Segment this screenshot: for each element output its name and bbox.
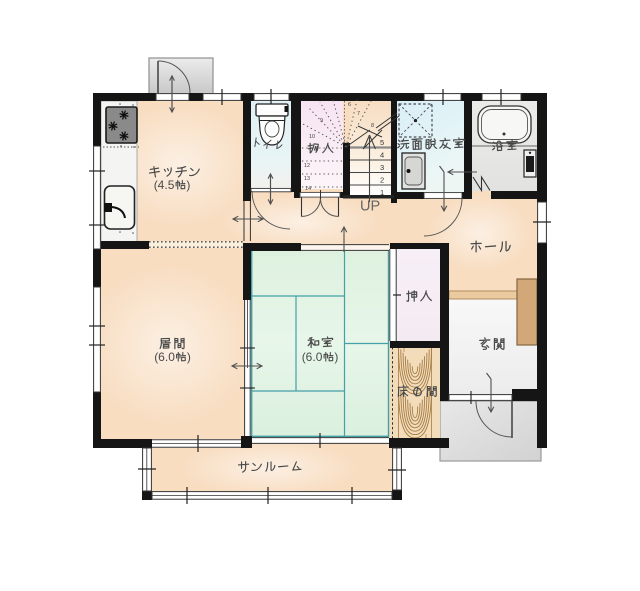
svg-text:(6.0: (6.0 xyxy=(154,350,175,364)
svg-text:12: 12 xyxy=(304,163,310,169)
svg-text:8: 8 xyxy=(371,123,374,129)
svg-text:3: 3 xyxy=(380,163,384,172)
svg-text:10: 10 xyxy=(309,134,315,140)
svg-text:(4.5: (4.5 xyxy=(154,178,175,192)
svg-text:13: 13 xyxy=(304,176,310,182)
svg-text:(6.0: (6.0 xyxy=(302,350,323,364)
svg-text:): ) xyxy=(186,178,190,192)
svg-text:2: 2 xyxy=(380,176,384,185)
svg-text:4: 4 xyxy=(380,151,384,160)
svg-text:5: 5 xyxy=(380,138,384,147)
svg-text:6: 6 xyxy=(348,102,351,108)
svg-text:): ) xyxy=(187,350,191,364)
svg-text:7: 7 xyxy=(357,111,360,117)
svg-text:UP: UP xyxy=(360,199,380,215)
svg-text:9: 9 xyxy=(320,118,323,124)
svg-text:1: 1 xyxy=(380,188,384,197)
svg-text:14: 14 xyxy=(305,186,311,192)
svg-text:): ) xyxy=(334,350,338,364)
